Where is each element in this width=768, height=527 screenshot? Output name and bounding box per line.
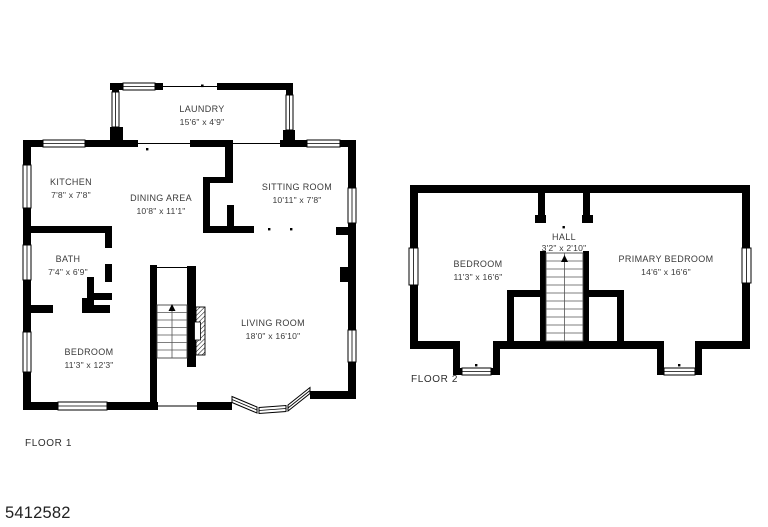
room-label-bedroom-f1: BEDROOM 11'3" x 12'3" <box>64 347 113 370</box>
svg-text:14'6" x 16'6": 14'6" x 16'6" <box>641 267 691 277</box>
window-icon <box>664 368 695 375</box>
window-icon <box>23 332 31 372</box>
svg-text:15'6" x 4'9": 15'6" x 4'9" <box>180 117 225 127</box>
room-label-sitting: SITTING ROOM 10'11" x 7'8" <box>262 182 332 205</box>
svg-text:DINING AREA: DINING AREA <box>130 193 192 203</box>
marker-dot <box>675 187 677 189</box>
room-label-dining: DINING AREA 10'8" x 11'1" <box>130 193 192 216</box>
svg-text:BEDROOM: BEDROOM <box>454 259 503 269</box>
floor2-plan: BEDROOM 11'3" x 16'6" HALL 3'2" x 2'10" … <box>409 185 751 385</box>
marker-dot <box>268 228 270 230</box>
window-icon <box>23 245 31 280</box>
svg-text:7'4" x 6'9": 7'4" x 6'9" <box>48 267 88 277</box>
marker-dot <box>146 148 148 150</box>
marker-dot <box>290 228 292 230</box>
window-icon <box>123 83 155 90</box>
svg-text:10'8" x 11'1": 10'8" x 11'1" <box>136 206 185 216</box>
marker-dot <box>201 85 204 88</box>
window-icon <box>43 140 85 147</box>
marker-dot <box>475 364 477 366</box>
svg-text:BATH: BATH <box>56 254 81 264</box>
svg-text:HALL: HALL <box>552 232 576 242</box>
marker-dot <box>563 226 565 228</box>
room-label-bath: BATH 7'4" x 6'9" <box>48 254 88 277</box>
svg-text:SITTING ROOM: SITTING ROOM <box>262 182 332 192</box>
room-label-kitchen: KITCHEN 7'8" x 7'8" <box>50 177 92 200</box>
floorplan-canvas: LAUNDRY 15'6" x 4'9" KITCHEN 7'8" x 7'8"… <box>0 0 768 527</box>
svg-text:3'2" x 2'10": 3'2" x 2'10" <box>542 243 587 253</box>
window-icon <box>58 402 107 410</box>
svg-text:KITCHEN: KITCHEN <box>50 177 92 187</box>
svg-text:LIVING ROOM: LIVING ROOM <box>241 318 305 328</box>
svg-text:LAUNDRY: LAUNDRY <box>179 104 224 114</box>
svg-text:10'11" x 7'8": 10'11" x 7'8" <box>272 195 321 205</box>
marker-dot <box>471 187 473 189</box>
floor2-label: FLOOR 2 <box>411 374 458 385</box>
window-icon <box>462 368 491 375</box>
window-icon <box>742 248 751 283</box>
window-icon <box>23 165 31 208</box>
plan-id: 5412582 <box>5 504 71 522</box>
room-label-laundry: LAUNDRY 15'6" x 4'9" <box>179 104 224 127</box>
window-icon <box>112 92 119 127</box>
svg-text:PRIMARY BEDROOM: PRIMARY BEDROOM <box>619 254 714 264</box>
marker-dot <box>678 364 680 366</box>
svg-text:11'3" x 12'3": 11'3" x 12'3" <box>64 360 113 370</box>
window-icon <box>286 95 293 130</box>
window-icon <box>348 330 356 362</box>
window-icon <box>307 140 340 147</box>
svg-text:11'3" x 16'6": 11'3" x 16'6" <box>453 272 502 282</box>
svg-text:BEDROOM: BEDROOM <box>65 347 114 357</box>
floor1-plan: LAUNDRY 15'6" x 4'9" KITCHEN 7'8" x 7'8"… <box>23 83 356 449</box>
staircase-floor1 <box>157 304 187 358</box>
bay-window-icon <box>232 388 310 414</box>
window-icon <box>409 248 418 285</box>
room-label-bedroom-f2: BEDROOM 11'3" x 16'6" <box>453 259 502 282</box>
floorplan-image: LAUNDRY 15'6" x 4'9" KITCHEN 7'8" x 7'8"… <box>0 0 768 527</box>
room-label-hall: HALL 3'2" x 2'10" <box>542 232 587 253</box>
svg-text:7'8" x 7'8": 7'8" x 7'8" <box>51 190 91 200</box>
room-label-living: LIVING ROOM 18'0" x 16'10" <box>241 318 305 341</box>
chimney-icon <box>195 307 206 355</box>
floor1-label: FLOOR 1 <box>25 438 72 449</box>
staircase-floor2 <box>546 253 583 341</box>
svg-text:18'0" x 16'10": 18'0" x 16'10" <box>246 331 301 341</box>
room-label-primary: PRIMARY BEDROOM 14'6" x 16'6" <box>619 254 714 277</box>
window-icon <box>348 188 356 223</box>
